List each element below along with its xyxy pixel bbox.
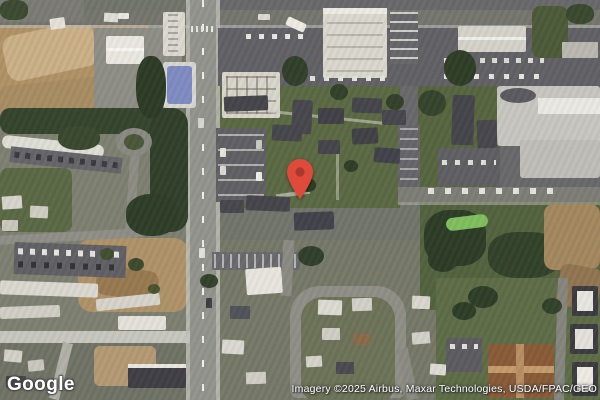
map-marker-pin[interactable] (287, 159, 313, 199)
pin-body (287, 159, 313, 199)
satellite-map-viewport[interactable]: Google Imagery ©2025 Airbus, Maxar Techn… (0, 0, 600, 400)
google-logo[interactable]: Google (7, 374, 75, 396)
texture-overlay (0, 0, 600, 400)
attribution-text: Imagery ©2025 Airbus, Maxar Technologies… (292, 383, 597, 395)
map-pin-icon (287, 159, 313, 199)
pin-inner-circle (295, 167, 304, 176)
